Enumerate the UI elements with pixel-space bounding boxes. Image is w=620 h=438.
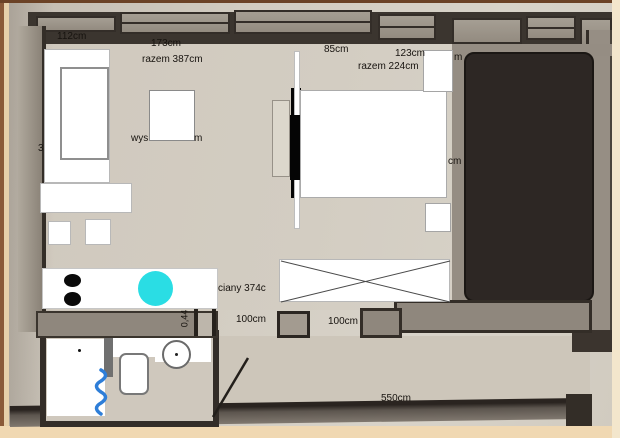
photo-edge-bottom: [0, 426, 620, 438]
crossed-out-box: [279, 259, 450, 302]
label-bed-width: 123cm: [395, 49, 425, 59]
label-bed-width-partial: m: [454, 53, 462, 63]
bed: [300, 90, 447, 198]
chimney-pillar: [277, 311, 310, 338]
label-bed-side-wall: 85cm: [324, 45, 348, 55]
label-gap-right: 100cm: [328, 317, 358, 327]
label-sofa-width: 112cm: [57, 32, 86, 42]
label-mid-wall: ciany 374c: [218, 284, 266, 294]
washing-machine-dot: [175, 353, 178, 356]
label-left-partial: 3: [38, 144, 44, 154]
wall-top-block: [526, 16, 576, 40]
table: [149, 90, 195, 141]
dark-room: [464, 52, 594, 302]
floor-plan: 112cm 173cm razem 387cm 85cm 123cm m raz…: [0, 0, 620, 438]
label-top-left-wall: 173cm: [151, 39, 181, 49]
label-height-prefix: wys: [131, 134, 148, 144]
photo-edge-top: [0, 0, 620, 3]
door-opening: [198, 313, 212, 336]
door-hinge-dot: [78, 349, 81, 352]
label-bottom-wall: 550cm: [381, 394, 411, 404]
small-square-b: [85, 219, 111, 245]
wall-right-end: [572, 330, 612, 352]
small-square-a: [48, 221, 71, 245]
sofa-seat: [60, 67, 109, 160]
small-square-top-right: [423, 50, 453, 92]
burner-icon: [64, 292, 81, 306]
wall-bottom-step: [566, 394, 592, 426]
small-square-bottom-right: [425, 203, 451, 232]
label-top-right-total: razem 224cm: [358, 62, 419, 72]
wall-below-dark-room: [394, 300, 592, 333]
label-right-partial: cm: [448, 157, 461, 167]
nightstand: [272, 100, 290, 177]
door-swing-line: [208, 352, 252, 420]
wall-top-block: [36, 16, 116, 32]
wall-top-block: [452, 18, 522, 44]
label-height-suffix: m: [194, 134, 202, 144]
wall-top-block: [120, 12, 230, 34]
photo-edge-left: [4, 0, 9, 438]
wall-top-block: [234, 10, 372, 34]
wall-top-block: [378, 14, 436, 40]
sink-circle: [138, 271, 173, 306]
label-top-left-total: razem 387cm: [142, 55, 203, 65]
x-cross-icon: [280, 260, 451, 303]
label-gap-left: 100cm: [236, 315, 266, 325]
label-door-width: 0,44: [180, 310, 189, 328]
toilet: [119, 353, 149, 395]
wall-step: [360, 308, 402, 338]
photo-edge-right: [612, 0, 620, 438]
shelf-under-sofa: [40, 183, 132, 213]
burner-icon: [64, 274, 81, 287]
radiator-squiggle-icon: [92, 368, 110, 416]
